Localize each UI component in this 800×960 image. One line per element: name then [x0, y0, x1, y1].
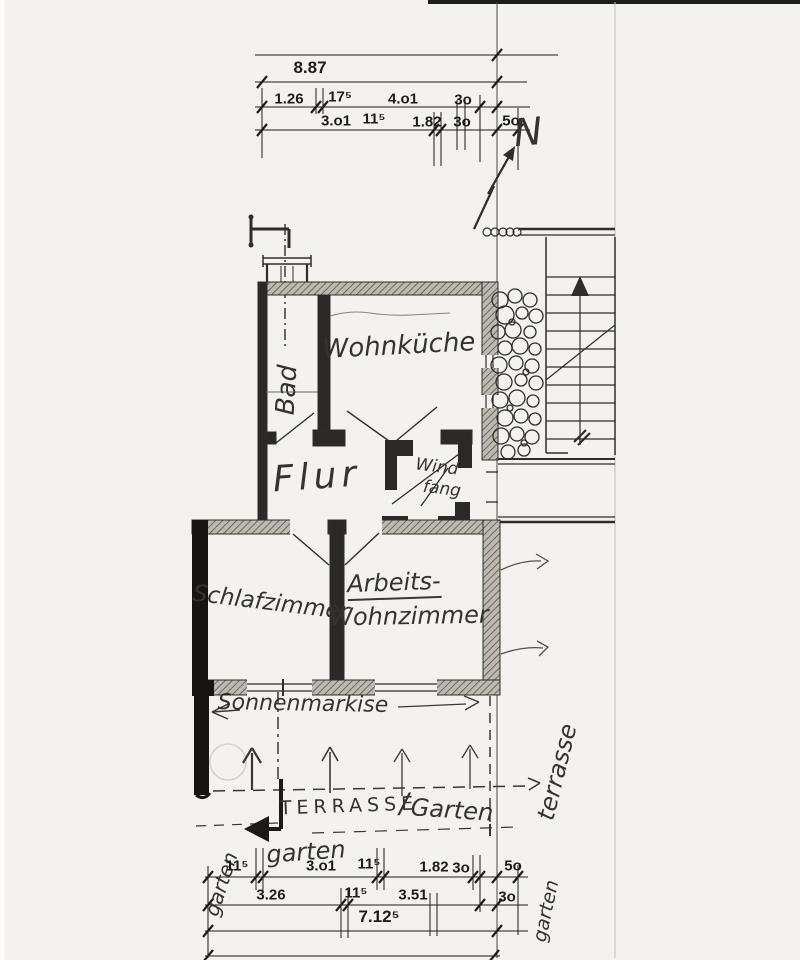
dim-bot-r1-0: 11⁵	[226, 858, 249, 875]
dim-top-r2-0: 3.o1	[321, 113, 351, 130]
dim-top-r1-3: 3o	[454, 92, 472, 109]
dim-top-r2-3: 3o	[453, 114, 471, 131]
annotation-sonnenmarkise: Sonnenmarkise	[217, 690, 388, 718]
dim-top-total: 8.87	[293, 58, 326, 78]
garden-entry-arrow	[244, 779, 281, 842]
east-view-arrows	[501, 554, 548, 656]
dim-bot-r2-0: 3.26	[256, 887, 285, 904]
room-label-arbeitszimmer-1: Arbeits-	[347, 567, 442, 601]
annotation-garten-script: Garten	[410, 793, 494, 827]
dim-top-r2-1: 11⁵	[363, 111, 386, 128]
annotation-separator: /	[399, 787, 408, 820]
dim-top-r2-2: 1.82	[412, 114, 441, 131]
room-label-arbeitszimmer-2: Wohnzimmer	[329, 601, 489, 632]
dim-bot-r1-3: 1.82	[419, 859, 448, 876]
room-label-flur: Flur	[272, 453, 363, 500]
room-label-bad: Bad	[271, 364, 304, 416]
dim-bot-total: 7.12⁵	[358, 907, 399, 927]
dim-bot-r1-1: 3.o1	[306, 858, 336, 875]
dim-bot-r1-4: 3o	[452, 860, 470, 877]
dim-bot-r1-2: 11⁵	[358, 856, 381, 873]
dim-top-r1-2: 4.o1	[388, 91, 418, 108]
north-label: N	[512, 109, 544, 155]
dim-bot-r2-2: 3.51	[398, 887, 427, 904]
dim-top-r1-0: 1.26	[274, 91, 303, 108]
floorplan-scan: 8.87 1.26 17⁵ 4.o1 3o 3.o1 11⁵ 1.82 3o 5…	[0, 0, 800, 960]
dim-bot-r1-5: 5o	[504, 858, 522, 875]
dim-bot-r2-1: 11⁵	[345, 885, 368, 902]
dim-bot-r2-3: 3o	[498, 889, 516, 906]
planted-bed-stones	[491, 289, 543, 459]
dim-top-r1-1: 17⁵	[328, 89, 352, 106]
